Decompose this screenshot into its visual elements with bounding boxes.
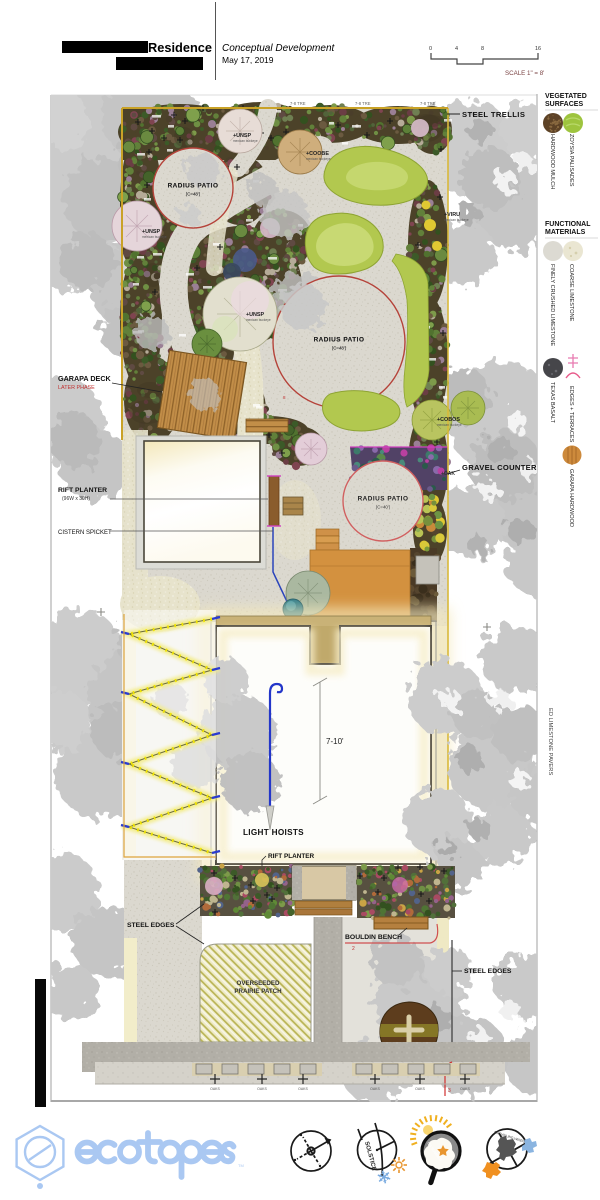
svg-text:RIFT PLANTER: RIFT PLANTER (268, 853, 315, 860)
svg-text:OAKS: OAKS (370, 1087, 380, 1091)
svg-text:GARAPA HARDWOOD: GARAPA HARDWOOD (568, 469, 574, 527)
svg-text:GRAVEL COUNTER: GRAVEL COUNTER (462, 463, 537, 472)
svg-text:7-8 TRE: 7-8 TRE (290, 101, 306, 106)
svg-text:VEGETATED: VEGETATED (545, 93, 587, 100)
svg-text:OAKS: OAKS (415, 1087, 425, 1091)
svg-text:OAKS: OAKS (298, 1087, 308, 1091)
svg-text:mexican buckeye: mexican buckeye (246, 318, 271, 322)
svg-text:GARAPA DECK: GARAPA DECK (58, 374, 112, 383)
svg-text:SURFACES: SURFACES (545, 101, 583, 108)
svg-text:CISTERN SPICKET: CISTERN SPICKET (58, 530, 112, 536)
svg-text:OVERSEEDED: OVERSEEDED (237, 980, 281, 987)
svg-text:OAKS: OAKS (460, 1087, 470, 1091)
svg-text:(96W x 30H): (96W x 30H) (62, 496, 90, 502)
svg-text:HARDWOOD MULCH: HARDWOOD MULCH (549, 134, 555, 189)
svg-text:Conceptual Development: Conceptual Development (222, 43, 336, 54)
svg-text:COARSE LIMESTONE: COARSE LIMESTONE (568, 264, 574, 322)
svg-text:STEEL TRELLIS: STEEL TRELLIS (462, 110, 525, 119)
svg-text:SCALE 1" = 8': SCALE 1" = 8' (505, 70, 544, 77)
svg-text:TM: TM (238, 1163, 244, 1168)
svg-text:ED LIMESTONE PAVERS: ED LIMESTONE PAVERS (547, 708, 553, 775)
svg-text:RIFT PLANTER: RIFT PLANTER (58, 487, 107, 494)
svg-text:RADIUS PATIO: RADIUS PATIO (168, 183, 219, 190)
svg-text:mexican buckeye: mexican buckeye (437, 423, 462, 427)
svg-text:16: 16 (535, 46, 541, 52)
svg-text:3: 3 (448, 1088, 451, 1094)
svg-text:FINELY CRUSHED LIMESTONE: FINELY CRUSHED LIMESTONE (549, 264, 555, 346)
svg-text:May 17, 2019: May 17, 2019 (222, 55, 274, 65)
svg-text:STEEL EDGES: STEEL EDGES (464, 968, 512, 975)
svg-text:OAKS: OAKS (257, 1087, 267, 1091)
svg-text:mexican buckeye: mexican buckeye (444, 218, 469, 222)
svg-text:7-8 TRE: 7-8 TRE (355, 101, 371, 106)
svg-text:mexican buckeye: mexican buckeye (306, 157, 331, 161)
svg-text:7-8 TRE: 7-8 TRE (420, 101, 436, 106)
svg-text:SOLSTICE: SOLSTICE (363, 1141, 377, 1172)
svg-text:BOULDIN BENCH: BOULDIN BENCH (345, 934, 402, 941)
svg-text:LATER PHASE: LATER PHASE (58, 385, 95, 391)
svg-text:PRAIRIE PATCH: PRAIRIE PATCH (234, 988, 282, 995)
svg-text:0: 0 (429, 46, 432, 52)
svg-text:7-10': 7-10' (326, 737, 344, 746)
svg-text:(C=40'): (C=40') (376, 505, 391, 510)
svg-text:(C=48'): (C=48') (186, 192, 201, 197)
svg-text:LIGHT HOISTS: LIGHT HOISTS (243, 828, 304, 837)
svg-text:STEEL EDGES: STEEL EDGES (127, 922, 175, 929)
svg-text:TEXAS BASALT: TEXAS BASALT (549, 382, 555, 424)
svg-text:RADIUS PATIO: RADIUS PATIO (314, 337, 365, 344)
svg-text:(C=48'): (C=48') (332, 346, 347, 351)
svg-text:EDGES + TERRACES: EDGES + TERRACES (568, 386, 574, 443)
svg-text:OAKS: OAKS (210, 1087, 220, 1091)
svg-text:MATERIALS: MATERIALS (545, 229, 586, 236)
svg-text:ZOYSIA PALISADES: ZOYSIA PALISADES (568, 134, 574, 187)
svg-text:8: 8 (481, 46, 484, 52)
svg-text:RADIUS PATIO: RADIUS PATIO (358, 496, 409, 503)
svg-text:2: 2 (352, 946, 355, 952)
svg-text:4: 4 (455, 46, 458, 52)
svg-text:Residence: Residence (148, 40, 212, 55)
svg-text:FUNCTIONAL: FUNCTIONAL (545, 221, 591, 228)
svg-text:mexican buckeye: mexican buckeye (142, 235, 167, 239)
svg-text:mexican buckeye: mexican buckeye (233, 139, 258, 143)
